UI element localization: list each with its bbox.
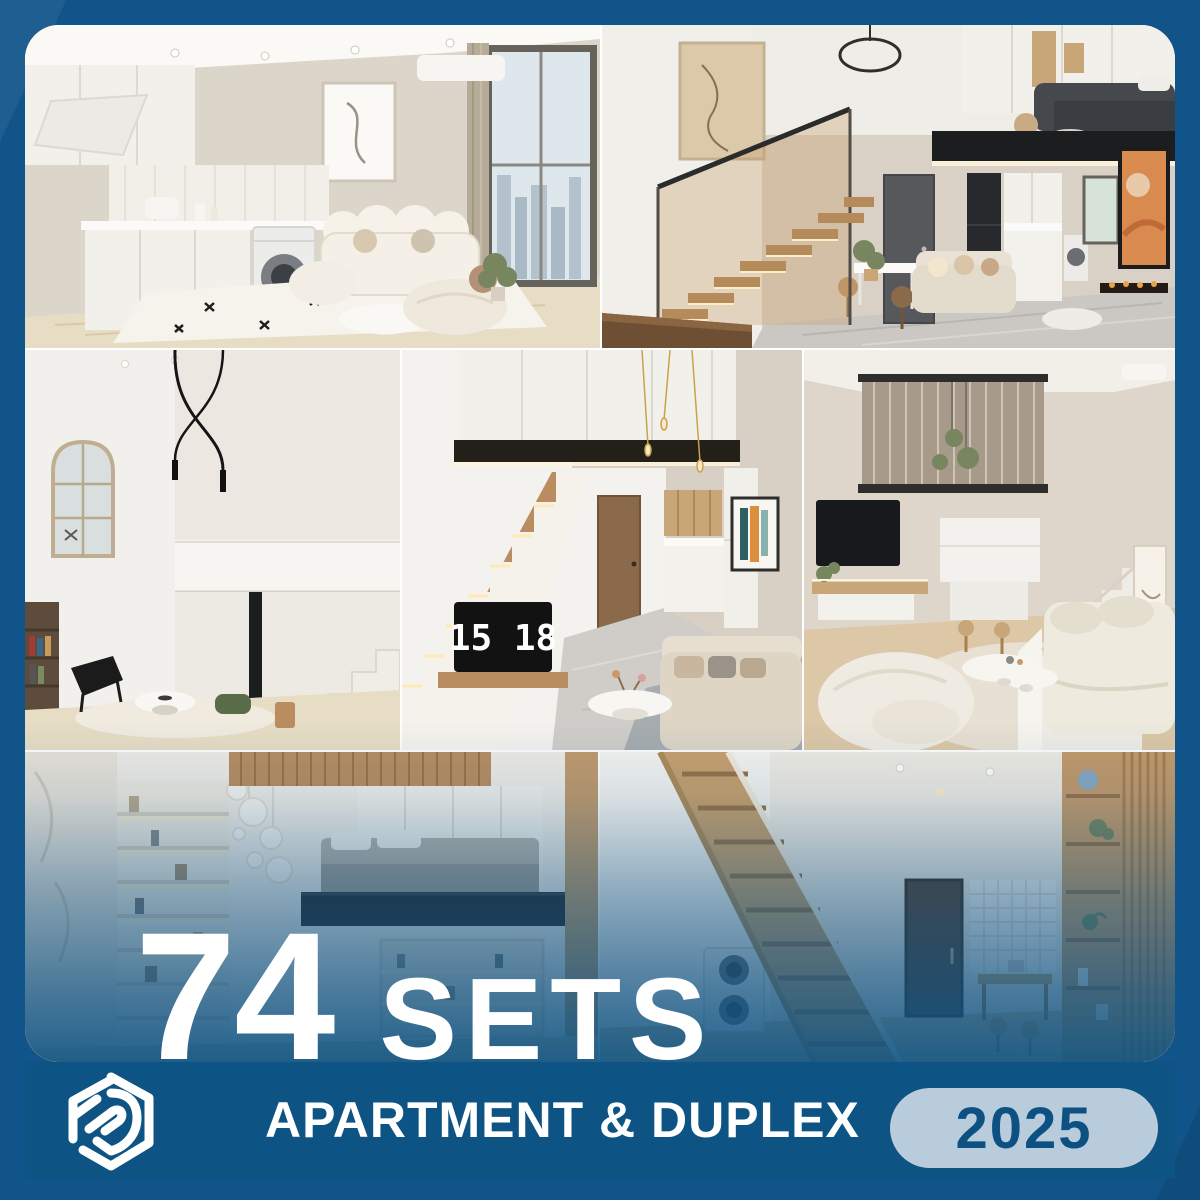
brand-hexagon-logo-icon: [61, 1071, 161, 1171]
kitchen-living-illustration: [25, 25, 600, 348]
photo-tall-white-duplex: [25, 350, 400, 750]
svg-text:15 18: 15 18: [449, 618, 557, 659]
arched-window: [53, 442, 113, 556]
mezzanine-parapet: [175, 540, 400, 592]
loft-level: [454, 350, 740, 466]
wood-door: [598, 496, 640, 630]
line-art-frame: [323, 83, 395, 181]
wood-stool: [275, 702, 295, 728]
beige-living-illustration: [804, 350, 1175, 750]
wood-shelving-wall: [1062, 752, 1175, 1062]
globe-decor: [1078, 770, 1098, 790]
photo-kitchen-living: [25, 25, 600, 348]
wood-slat-ceiling: [229, 752, 491, 786]
white-sofa-large: [1044, 596, 1175, 734]
year-badge: 2025: [890, 1088, 1158, 1168]
headline: 74 SETS: [135, 905, 714, 1087]
round-coffee-table: [1042, 308, 1102, 330]
headline-unit: SETS: [379, 961, 714, 1077]
tall-duplex-illustration: [25, 350, 400, 750]
bookshelf: [25, 602, 59, 714]
dark-entry-door: [906, 880, 962, 1016]
ac-unit: [417, 55, 505, 81]
green-ottoman: [215, 694, 251, 714]
photo-duplex-loft-living: [602, 25, 1175, 348]
wall-art: [680, 43, 764, 159]
headline-number: 74: [135, 905, 333, 1087]
wood-plinth: [438, 672, 568, 688]
ac-unit: [1122, 364, 1166, 380]
beige-sofa: [912, 251, 1016, 313]
loft-glass-balustrade: [858, 374, 1048, 493]
stairs-clock-illustration: 15 18: [402, 350, 802, 750]
duplex-loft-illustration: [602, 25, 1175, 348]
footer-bar: APARTMENT & DUPLEX 2025: [25, 1062, 1175, 1178]
footer-title: APARTMENT & DUPLEX: [265, 1062, 860, 1178]
window-city-view: [485, 45, 597, 287]
black-column: [249, 592, 262, 712]
flip-clock: 15 18: [449, 602, 557, 672]
photo-stairs-flip-clock: 15 18: [402, 350, 802, 750]
photo-beige-living-loft: [804, 350, 1175, 750]
white-pouf-chair: [818, 652, 974, 750]
abstract-art: [732, 498, 778, 570]
beige-sofa: [660, 636, 802, 750]
